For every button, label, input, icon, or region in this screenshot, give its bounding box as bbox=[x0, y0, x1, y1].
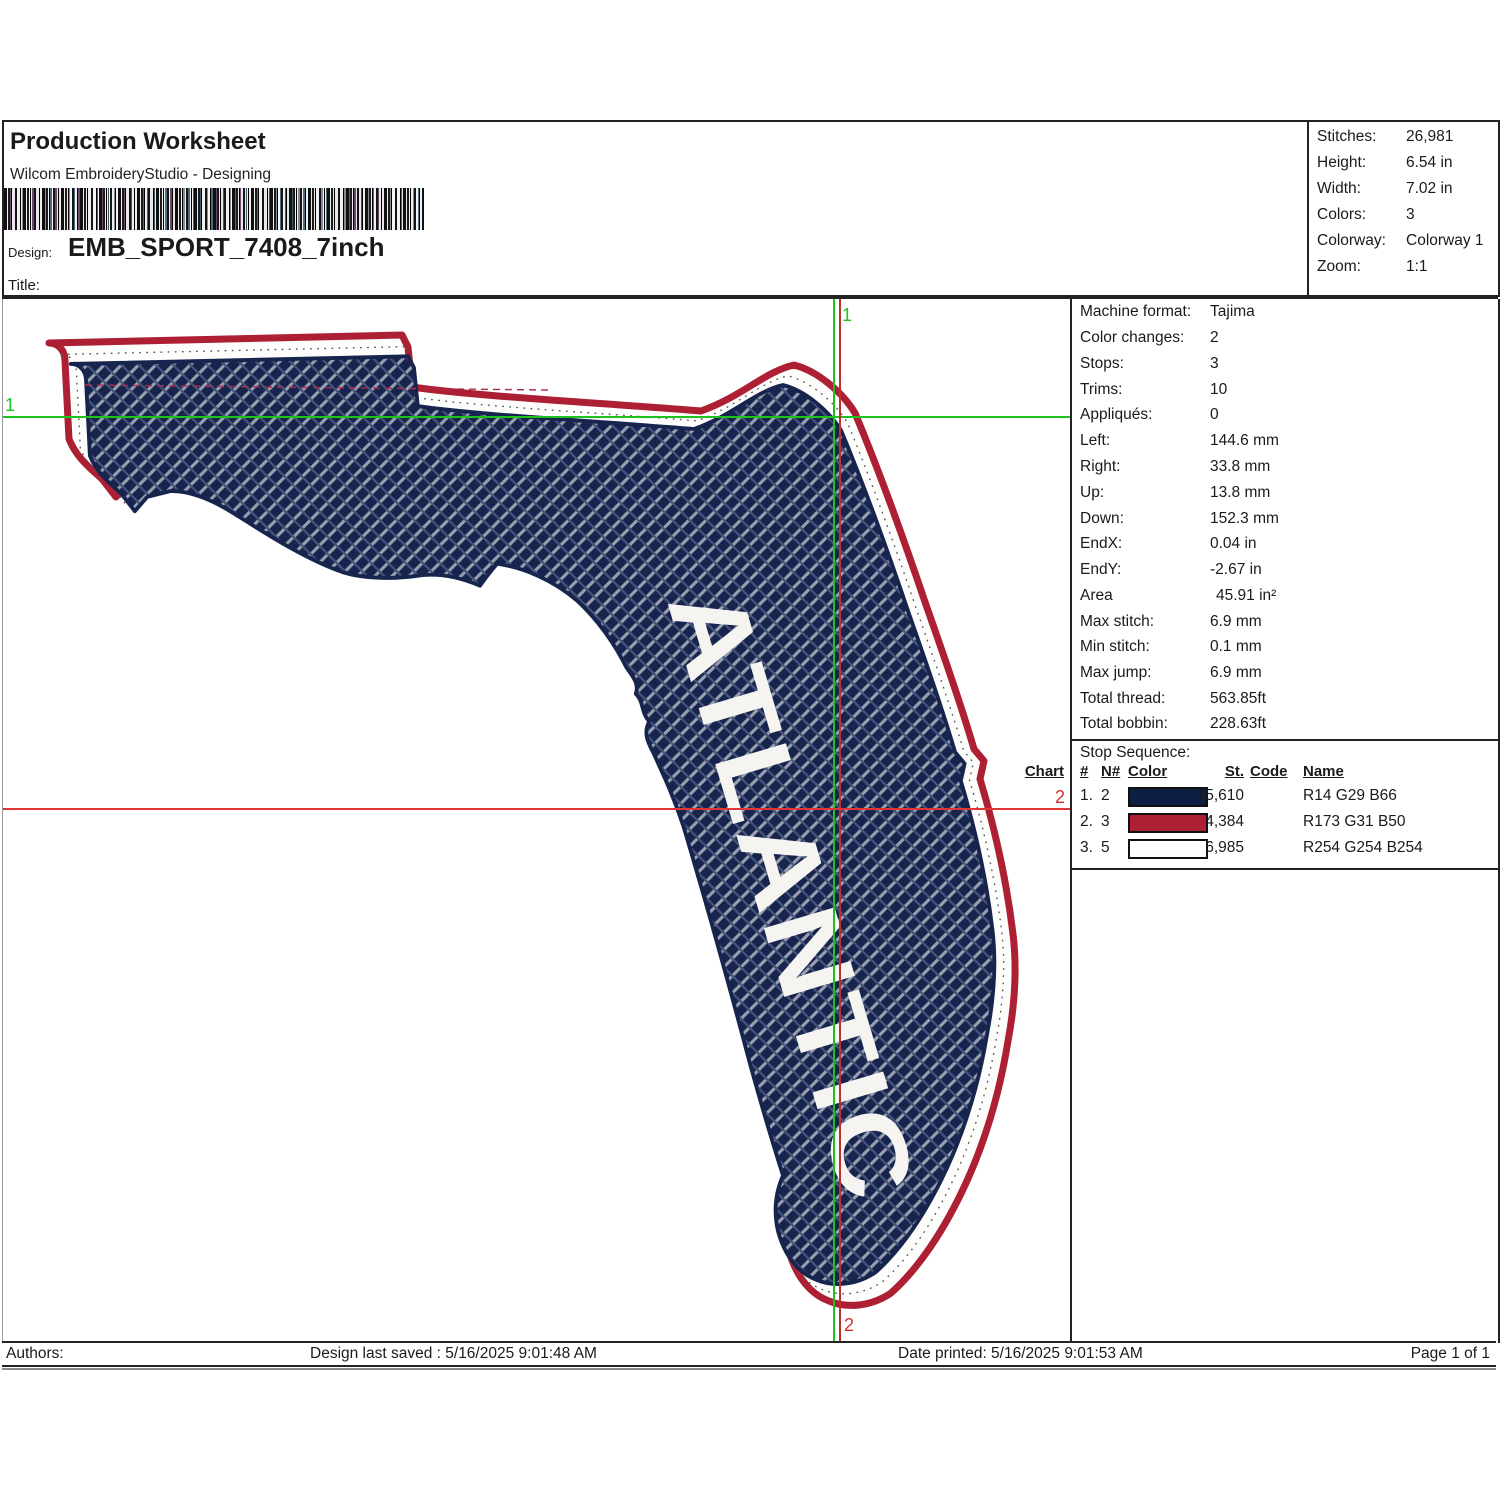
col-num: # bbox=[1080, 763, 1088, 780]
col-name: Name bbox=[1303, 763, 1344, 780]
info-row: EndX:0.04 in bbox=[1080, 535, 1122, 553]
end-marker-right: 2 bbox=[1055, 787, 1065, 807]
page-title: Production Worksheet bbox=[10, 128, 266, 156]
stat-row: Height:6.54 in bbox=[1317, 154, 1366, 172]
app-subtitle: Wilcom EmbroideryStudio - Designing bbox=[10, 166, 271, 184]
info-row: Min stitch:0.1 mm bbox=[1080, 638, 1150, 656]
date-printed-text: Date printed: 5/16/2025 9:01:53 AM bbox=[898, 1345, 1143, 1363]
stat-row: Colors:3 bbox=[1317, 206, 1366, 224]
info-row: Trims:10 bbox=[1080, 381, 1122, 399]
production-worksheet-page: { "header": { "title": "Production Works… bbox=[0, 0, 1500, 1495]
col-chart: Chart bbox=[1025, 763, 1064, 780]
embroidery-design-svg: ATLANTIC 1 1 2 2 bbox=[3, 299, 1071, 1343]
authors-label: Authors: bbox=[6, 1345, 64, 1363]
footer-divider-line bbox=[2, 1368, 1496, 1370]
stat-row: Colorway:Colorway 1 bbox=[1317, 232, 1386, 250]
end-marker-bottom: 2 bbox=[844, 1315, 854, 1335]
stop-sequence-section: Stop Sequence: # N# Color St. Code Name … bbox=[1072, 739, 1498, 870]
col-st: St. bbox=[1166, 763, 1244, 780]
design-barcode bbox=[4, 188, 424, 230]
info-row: Max jump:6.9 mm bbox=[1080, 664, 1152, 682]
start-marker-top: 1 bbox=[842, 305, 852, 325]
info-row: Area45.91 in² bbox=[1080, 587, 1113, 605]
footer-bar: Authors: Design last saved : 5/16/2025 9… bbox=[2, 1341, 1496, 1367]
info-row: Total bobbin:228.63ft bbox=[1080, 715, 1168, 733]
start-marker-left: 1 bbox=[5, 395, 15, 415]
info-row: EndY:-2.67 in bbox=[1080, 561, 1121, 579]
design-name-value: EMB_SPORT_7408_7inch bbox=[68, 232, 384, 263]
stop-sequence-title: Stop Sequence: bbox=[1080, 744, 1190, 762]
page-number: Page 1 of 1 bbox=[1411, 1345, 1490, 1363]
stat-row: Zoom:1:1 bbox=[1317, 258, 1361, 276]
design-preview-canvas: ATLANTIC 1 1 2 2 bbox=[2, 299, 1071, 1343]
info-row: Up:13.8 mm bbox=[1080, 484, 1104, 502]
info-row: Stops:3 bbox=[1080, 355, 1124, 373]
empty-section bbox=[1072, 868, 1498, 1345]
col-code: Code bbox=[1250, 763, 1288, 780]
design-name-label: Design: bbox=[8, 245, 52, 260]
info-row: Machine format:Tajima bbox=[1080, 303, 1191, 321]
info-row: Color changes:2 bbox=[1080, 329, 1184, 347]
summary-stats-box: Stitches:26,981 Height:6.54 in Width:7.0… bbox=[1307, 120, 1500, 297]
col-color: Color bbox=[1128, 763, 1167, 780]
col-n: N# bbox=[1101, 763, 1120, 780]
stat-row: Stitches:26,981 bbox=[1317, 128, 1376, 146]
info-row: Left:144.6 mm bbox=[1080, 432, 1110, 450]
info-panel: Machine format:Tajima Color changes:2 St… bbox=[1070, 299, 1500, 1343]
info-row: Appliqués:0 bbox=[1080, 406, 1152, 424]
info-row: Max stitch:6.9 mm bbox=[1080, 613, 1154, 631]
main-area: ATLANTIC 1 1 2 2 Machine format:Tajima C… bbox=[2, 297, 1498, 1343]
header-box: Production Worksheet Wilcom EmbroiderySt… bbox=[2, 120, 1309, 297]
design-title-label: Title: bbox=[8, 277, 40, 294]
stat-row: Width:7.02 in bbox=[1317, 180, 1361, 198]
design-saved-text: Design last saved : 5/16/2025 9:01:48 AM bbox=[310, 1345, 597, 1363]
info-row: Down:152.3 mm bbox=[1080, 510, 1124, 528]
info-row: Right:33.8 mm bbox=[1080, 458, 1121, 476]
info-row: Total thread:563.85ft bbox=[1080, 690, 1165, 708]
